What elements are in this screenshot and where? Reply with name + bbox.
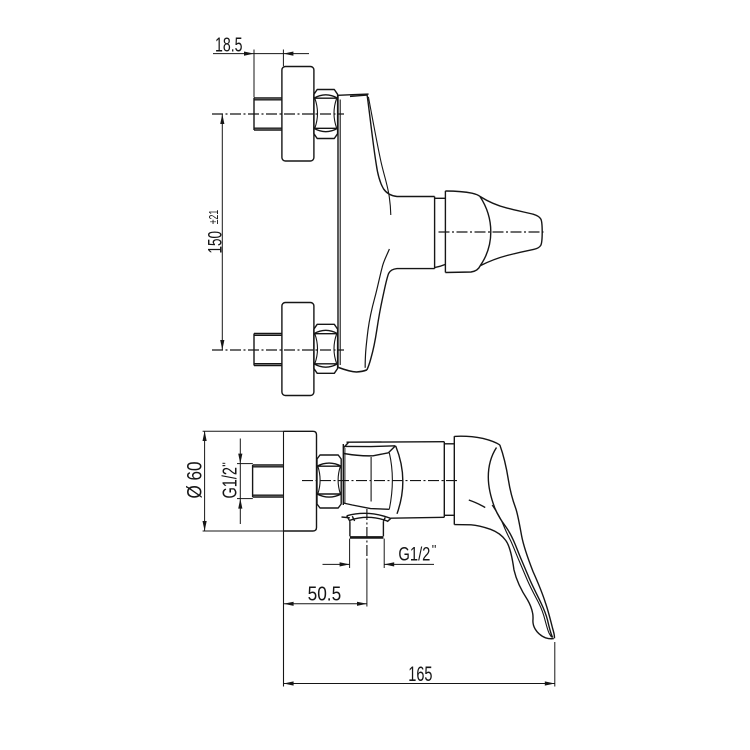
- svg-text:Ø 60: Ø 60: [184, 462, 207, 499]
- svg-text:50.5: 50.5: [308, 583, 342, 606]
- svg-text:165: 165: [408, 662, 432, 686]
- svg-text:18.5: 18.5: [215, 34, 243, 57]
- svg-text:±21: ±21: [206, 210, 221, 225]
- svg-text:": ": [220, 462, 235, 467]
- svg-text:": ": [432, 542, 437, 557]
- svg-text:150: 150: [206, 231, 227, 254]
- svg-text:G1/2: G1/2: [398, 543, 430, 565]
- svg-text:G1/2: G1/2: [220, 467, 242, 499]
